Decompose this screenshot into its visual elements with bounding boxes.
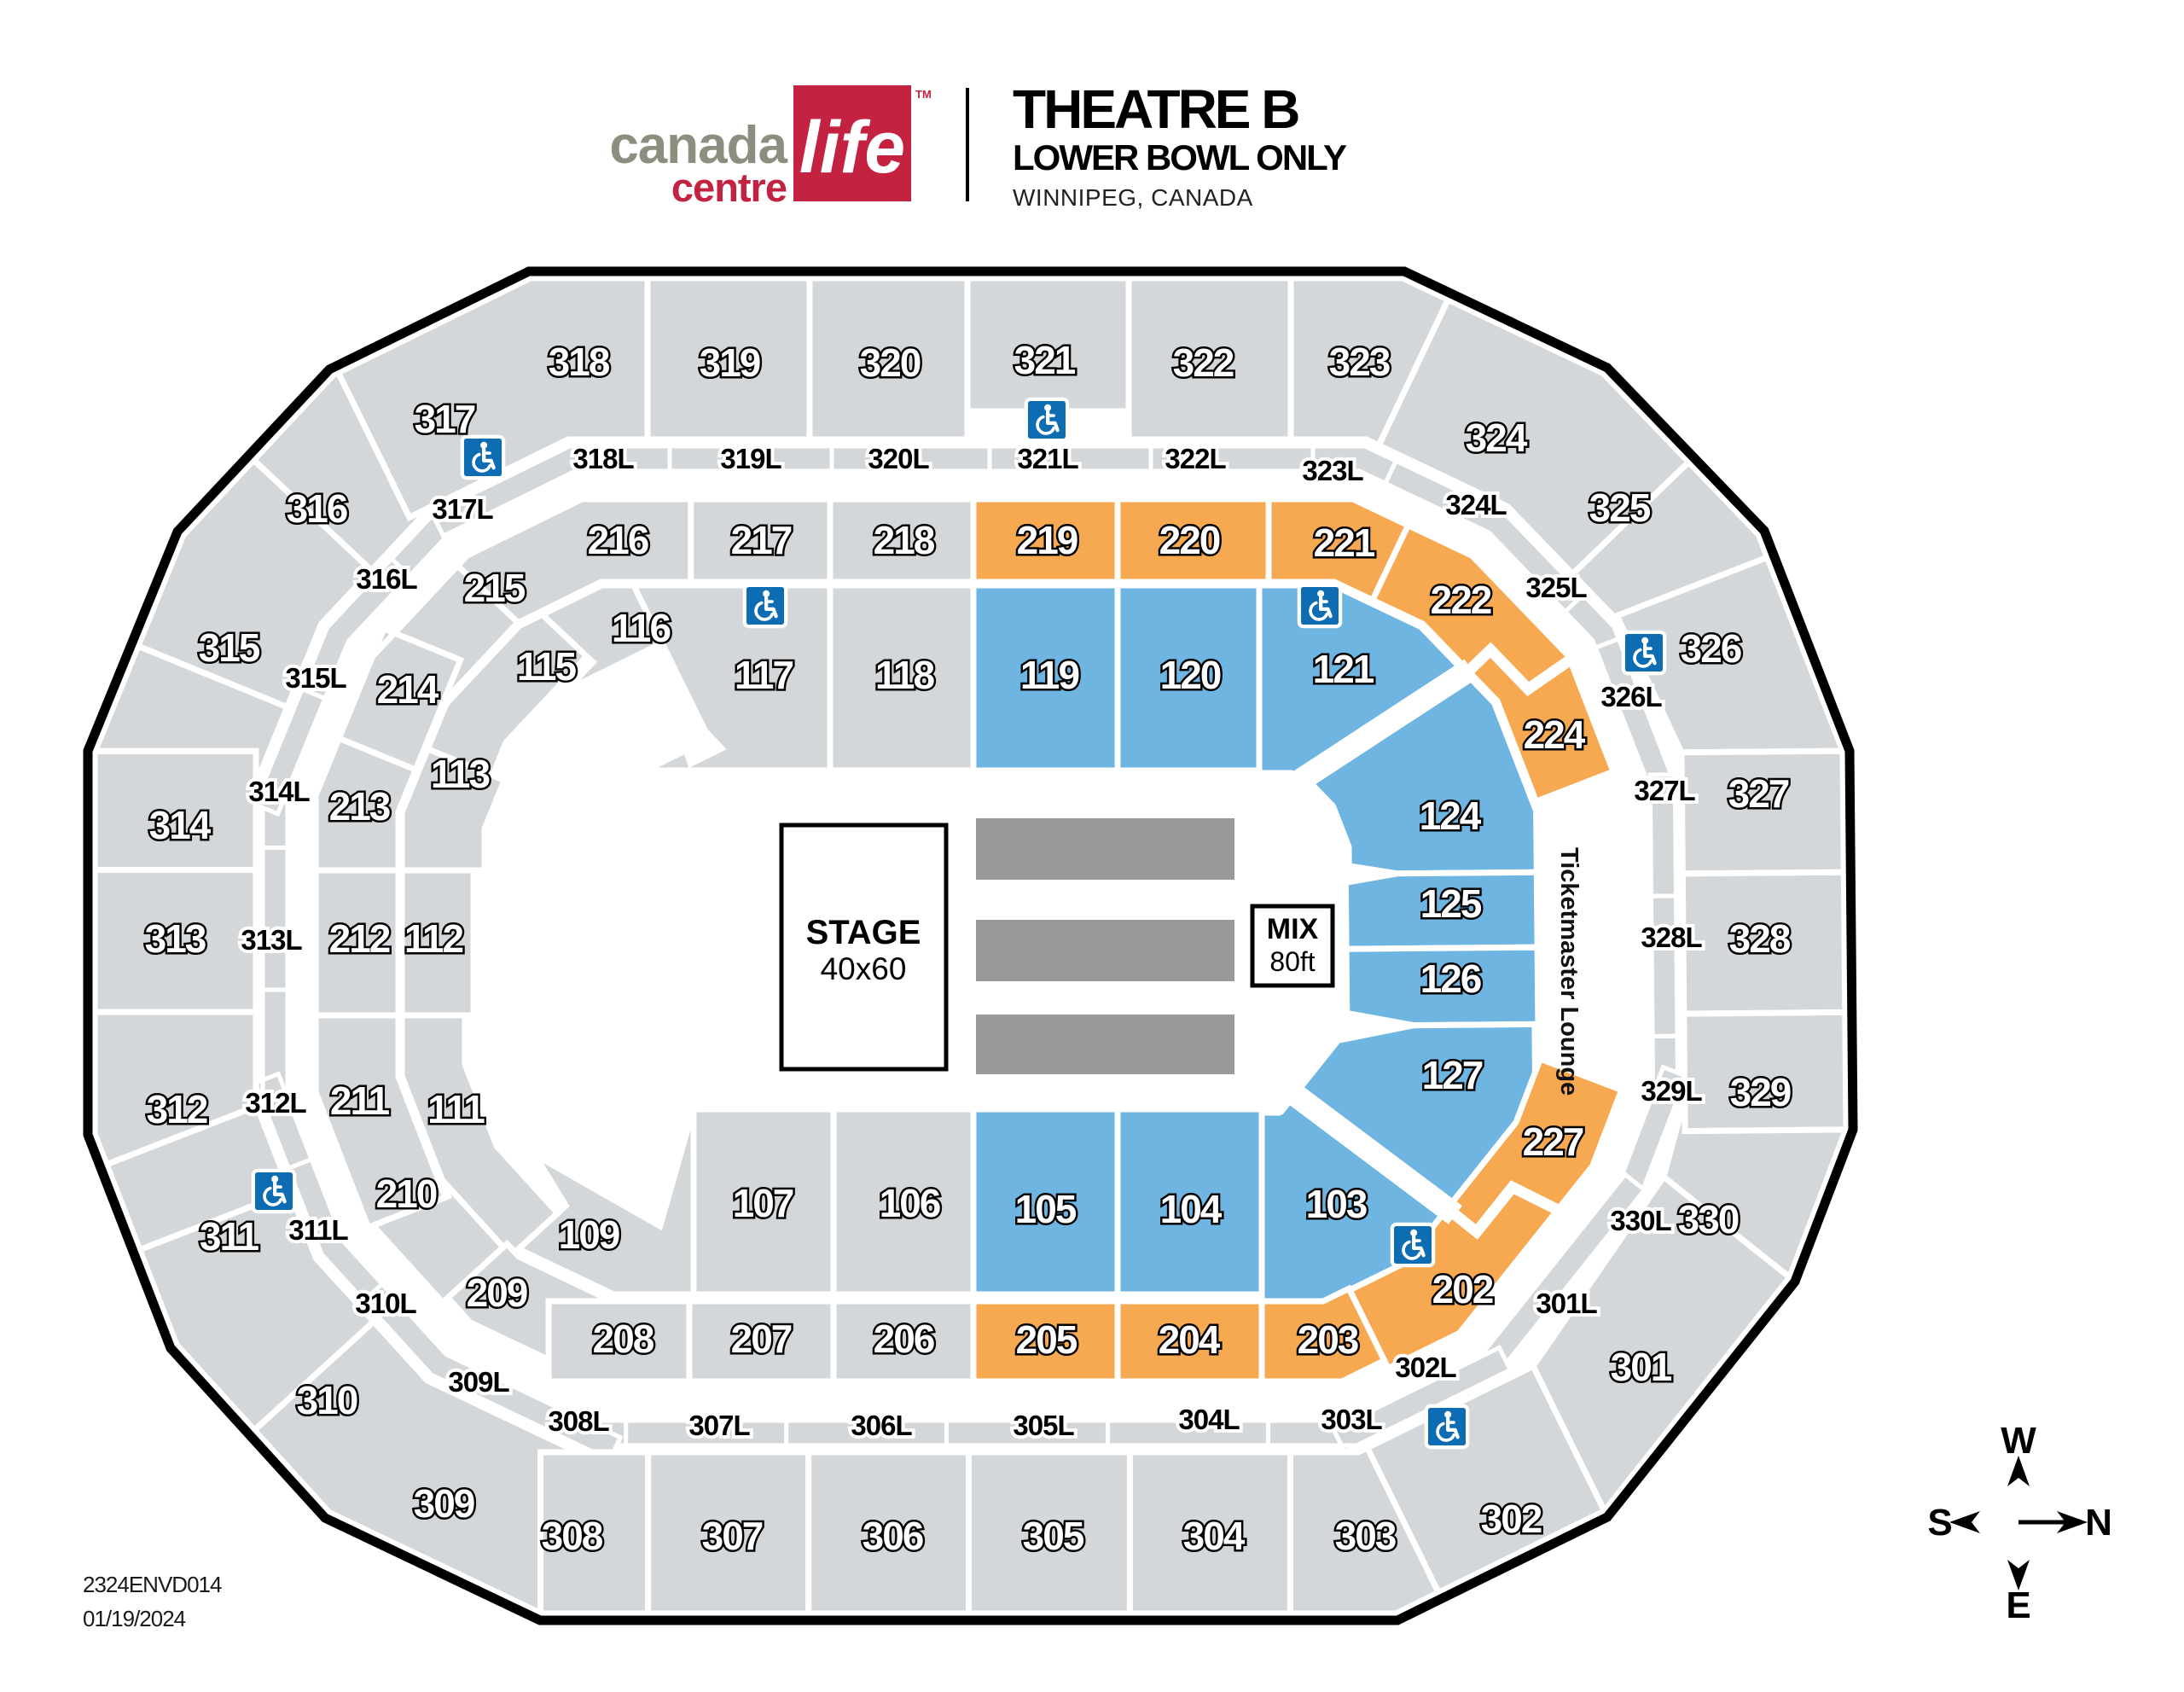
- svg-text:310: 310: [297, 1378, 357, 1422]
- svg-text:316L: 316L: [356, 563, 417, 595]
- svg-text:314: 314: [149, 803, 212, 847]
- svg-text:325L: 325L: [1525, 572, 1587, 603]
- svg-text:314L: 314L: [248, 776, 310, 807]
- svg-text:80ft: 80ft: [1269, 946, 1315, 977]
- svg-text:319L: 319L: [720, 443, 781, 474]
- svg-text:224: 224: [1524, 712, 1586, 757]
- svg-text:116: 116: [612, 606, 671, 650]
- svg-text:125: 125: [1420, 881, 1482, 926]
- svg-text:109: 109: [559, 1212, 619, 1257]
- svg-text:MIX: MIX: [1267, 913, 1319, 945]
- svg-text:322L: 322L: [1165, 443, 1226, 474]
- svg-text:219: 219: [1017, 518, 1077, 562]
- svg-text:113: 113: [431, 752, 490, 796]
- svg-text:320L: 320L: [868, 443, 929, 474]
- svg-text:323L: 323L: [1302, 455, 1363, 486]
- svg-text:207: 207: [731, 1317, 792, 1361]
- svg-text:208: 208: [593, 1317, 654, 1361]
- svg-text:318L: 318L: [572, 443, 634, 474]
- svg-text:324L: 324L: [1445, 489, 1507, 520]
- svg-text:120: 120: [1160, 653, 1221, 697]
- svg-text:323: 323: [1329, 340, 1390, 384]
- svg-text:107: 107: [733, 1181, 793, 1225]
- svg-text:127: 127: [1422, 1053, 1483, 1097]
- svg-text:217: 217: [731, 518, 792, 562]
- svg-text:318: 318: [549, 340, 610, 384]
- svg-text:312L: 312L: [245, 1087, 306, 1119]
- svg-text:317L: 317L: [432, 493, 493, 525]
- svg-text:306L: 306L: [851, 1410, 912, 1441]
- svg-text:309L: 309L: [448, 1366, 509, 1398]
- svg-text:STAGE: STAGE: [806, 914, 921, 951]
- svg-text:211: 211: [330, 1079, 390, 1123]
- svg-text:204: 204: [1159, 1317, 1221, 1362]
- svg-text:THEATRE B: THEATRE B: [1013, 78, 1298, 140]
- svg-text:311: 311: [200, 1214, 259, 1259]
- svg-text:119: 119: [1020, 653, 1079, 697]
- svg-text:309: 309: [414, 1481, 474, 1526]
- svg-text:227: 227: [1523, 1119, 1583, 1164]
- svg-text:117: 117: [735, 653, 793, 697]
- svg-text:307: 307: [702, 1514, 763, 1558]
- svg-text:215: 215: [464, 566, 526, 610]
- svg-text:301: 301: [1611, 1345, 1672, 1389]
- svg-text:220: 220: [1159, 518, 1220, 562]
- svg-text:205: 205: [1016, 1317, 1077, 1362]
- svg-text:325: 325: [1589, 486, 1651, 530]
- svg-text:2324ENVD014: 2324ENVD014: [83, 1572, 222, 1597]
- svg-text:317: 317: [415, 397, 475, 441]
- svg-text:319: 319: [700, 340, 760, 385]
- svg-text:311L: 311L: [288, 1214, 348, 1246]
- svg-text:326L: 326L: [1600, 681, 1662, 712]
- svg-text:221: 221: [1314, 520, 1375, 565]
- svg-text:118: 118: [875, 653, 935, 697]
- svg-text:313L: 313L: [241, 924, 302, 956]
- svg-text:112: 112: [404, 916, 463, 961]
- svg-text:40x60: 40x60: [821, 951, 907, 986]
- svg-text:313: 313: [145, 916, 206, 961]
- svg-text:302: 302: [1481, 1497, 1542, 1541]
- svg-text:WINNIPEG, CANADA: WINNIPEG, CANADA: [1013, 184, 1253, 211]
- svg-text:210: 210: [376, 1172, 437, 1216]
- svg-text:202: 202: [1432, 1267, 1493, 1311]
- svg-text:S: S: [1927, 1502, 1952, 1544]
- svg-text:103: 103: [1306, 1182, 1367, 1226]
- svg-text:216: 216: [588, 518, 648, 562]
- svg-text:212: 212: [329, 916, 390, 961]
- svg-text:214: 214: [377, 667, 439, 712]
- svg-text:203: 203: [1298, 1317, 1358, 1362]
- svg-text:303: 303: [1335, 1514, 1396, 1558]
- svg-text:324: 324: [1466, 416, 1528, 460]
- svg-text:304L: 304L: [1178, 1404, 1240, 1435]
- svg-text:121: 121: [1313, 647, 1374, 691]
- svg-text:life: life: [799, 107, 905, 189]
- svg-text:304: 304: [1183, 1514, 1246, 1558]
- svg-text:322: 322: [1173, 340, 1234, 385]
- svg-text:305: 305: [1023, 1514, 1084, 1558]
- svg-text:306: 306: [863, 1514, 923, 1558]
- svg-text:106: 106: [880, 1181, 940, 1225]
- svg-text:111: 111: [427, 1087, 485, 1131]
- svg-text:N: N: [2085, 1502, 2112, 1544]
- svg-text:303L: 303L: [1321, 1404, 1382, 1435]
- svg-text:126: 126: [1420, 956, 1481, 1001]
- svg-text:209: 209: [467, 1270, 527, 1315]
- svg-text:centre: centre: [671, 165, 787, 210]
- svg-text:218: 218: [874, 518, 935, 562]
- svg-text:E: E: [2006, 1584, 2030, 1626]
- svg-text:01/19/2024: 01/19/2024: [83, 1606, 186, 1631]
- svg-text:Ticketmaster Lounge: Ticketmaster Lounge: [1555, 847, 1583, 1096]
- svg-text:305L: 305L: [1013, 1410, 1074, 1441]
- svg-text:327: 327: [1728, 771, 1789, 816]
- svg-text:308L: 308L: [548, 1405, 609, 1437]
- svg-text:308: 308: [542, 1514, 603, 1558]
- svg-text:315: 315: [199, 625, 260, 670]
- svg-text:105: 105: [1015, 1187, 1077, 1231]
- svg-text:316: 316: [287, 486, 347, 531]
- svg-text:104: 104: [1160, 1187, 1223, 1231]
- svg-text:330: 330: [1678, 1197, 1739, 1241]
- svg-text:329L: 329L: [1641, 1075, 1702, 1107]
- svg-text:302L: 302L: [1395, 1352, 1456, 1383]
- svg-text:206: 206: [874, 1317, 934, 1361]
- svg-text:213: 213: [329, 784, 390, 829]
- svg-text:W: W: [2001, 1420, 2036, 1462]
- svg-text:329: 329: [1730, 1070, 1791, 1114]
- svg-text:327L: 327L: [1634, 775, 1695, 806]
- svg-text:LOWER BOWL ONLY: LOWER BOWL ONLY: [1013, 137, 1347, 177]
- svg-text:115: 115: [517, 644, 577, 689]
- svg-text:315L: 315L: [285, 662, 346, 694]
- svg-text:312: 312: [147, 1087, 207, 1131]
- svg-text:326: 326: [1681, 626, 1741, 671]
- svg-text:TM: TM: [915, 88, 932, 101]
- svg-text:222: 222: [1431, 578, 1491, 622]
- svg-text:320: 320: [860, 340, 921, 385]
- svg-text:321L: 321L: [1017, 443, 1078, 474]
- svg-text:330L: 330L: [1610, 1205, 1671, 1236]
- svg-text:301L: 301L: [1536, 1288, 1597, 1319]
- svg-text:307L: 307L: [688, 1410, 750, 1441]
- svg-text:321: 321: [1014, 338, 1076, 382]
- svg-text:310L: 310L: [355, 1288, 416, 1319]
- svg-text:328: 328: [1729, 916, 1791, 961]
- svg-text:124: 124: [1420, 794, 1482, 838]
- svg-text:328L: 328L: [1641, 922, 1702, 953]
